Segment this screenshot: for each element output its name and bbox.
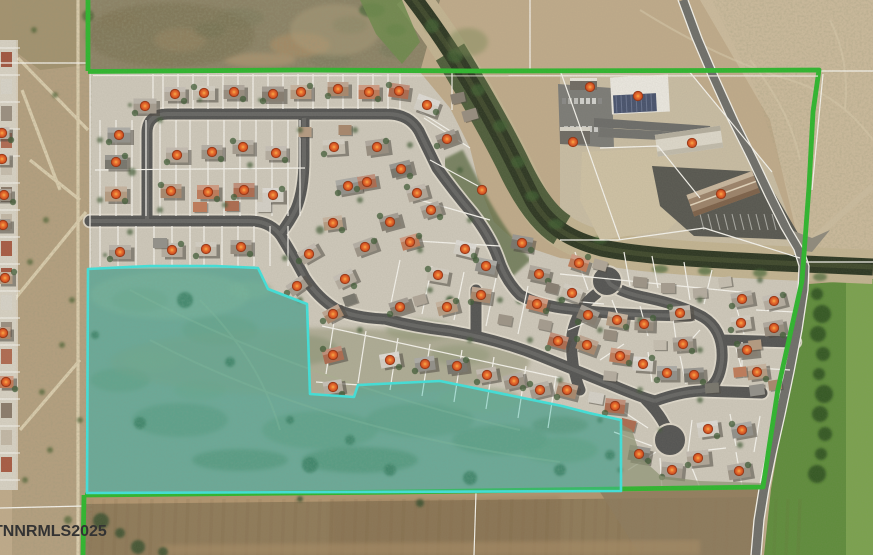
svg-text:TNNRMLS2025: TNNRMLS2025 xyxy=(0,523,107,540)
